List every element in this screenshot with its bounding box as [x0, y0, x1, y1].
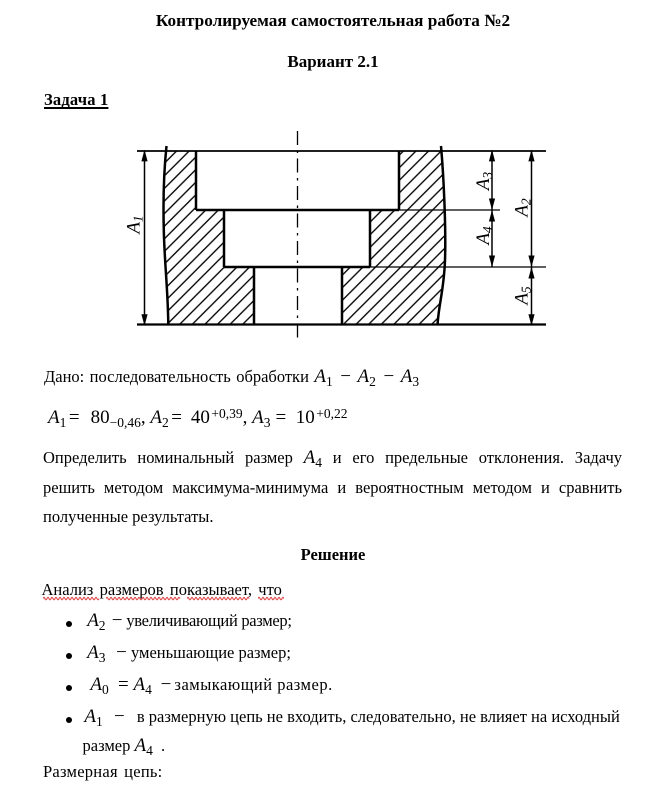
- svg-text:A5: A5: [512, 286, 534, 307]
- svg-text:A3: A3: [473, 172, 495, 193]
- svg-text:A2: A2: [512, 198, 534, 219]
- svg-text:A4: A4: [473, 226, 495, 247]
- svg-text:A1: A1: [124, 215, 146, 235]
